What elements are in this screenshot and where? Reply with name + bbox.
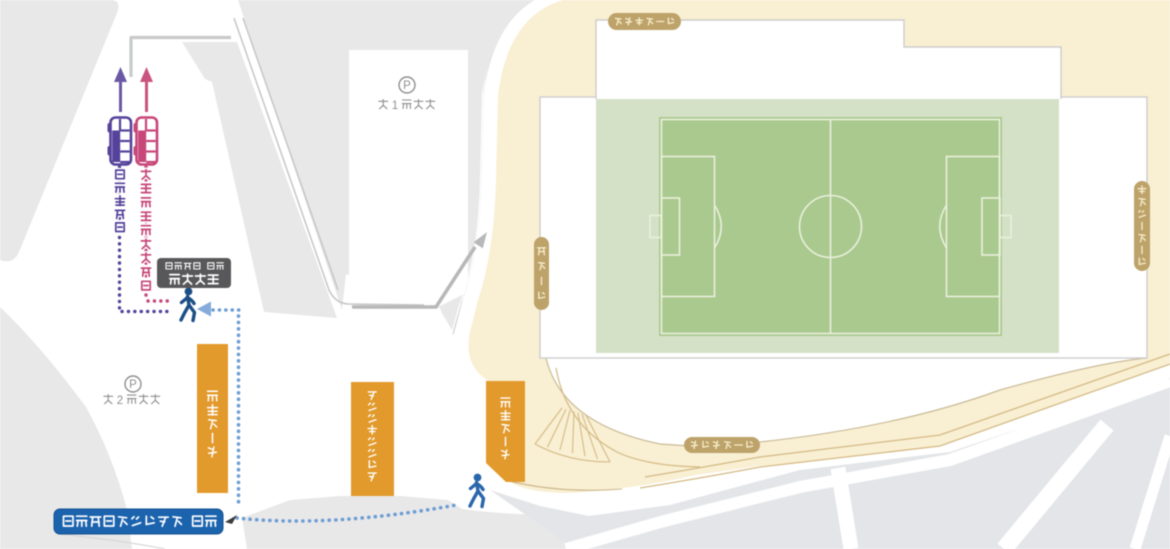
svg-text:2: 2 [117, 394, 123, 407]
svg-text:P: P [403, 80, 411, 92]
svg-text:P: P [129, 379, 137, 391]
svg-text:1: 1 [392, 99, 398, 112]
